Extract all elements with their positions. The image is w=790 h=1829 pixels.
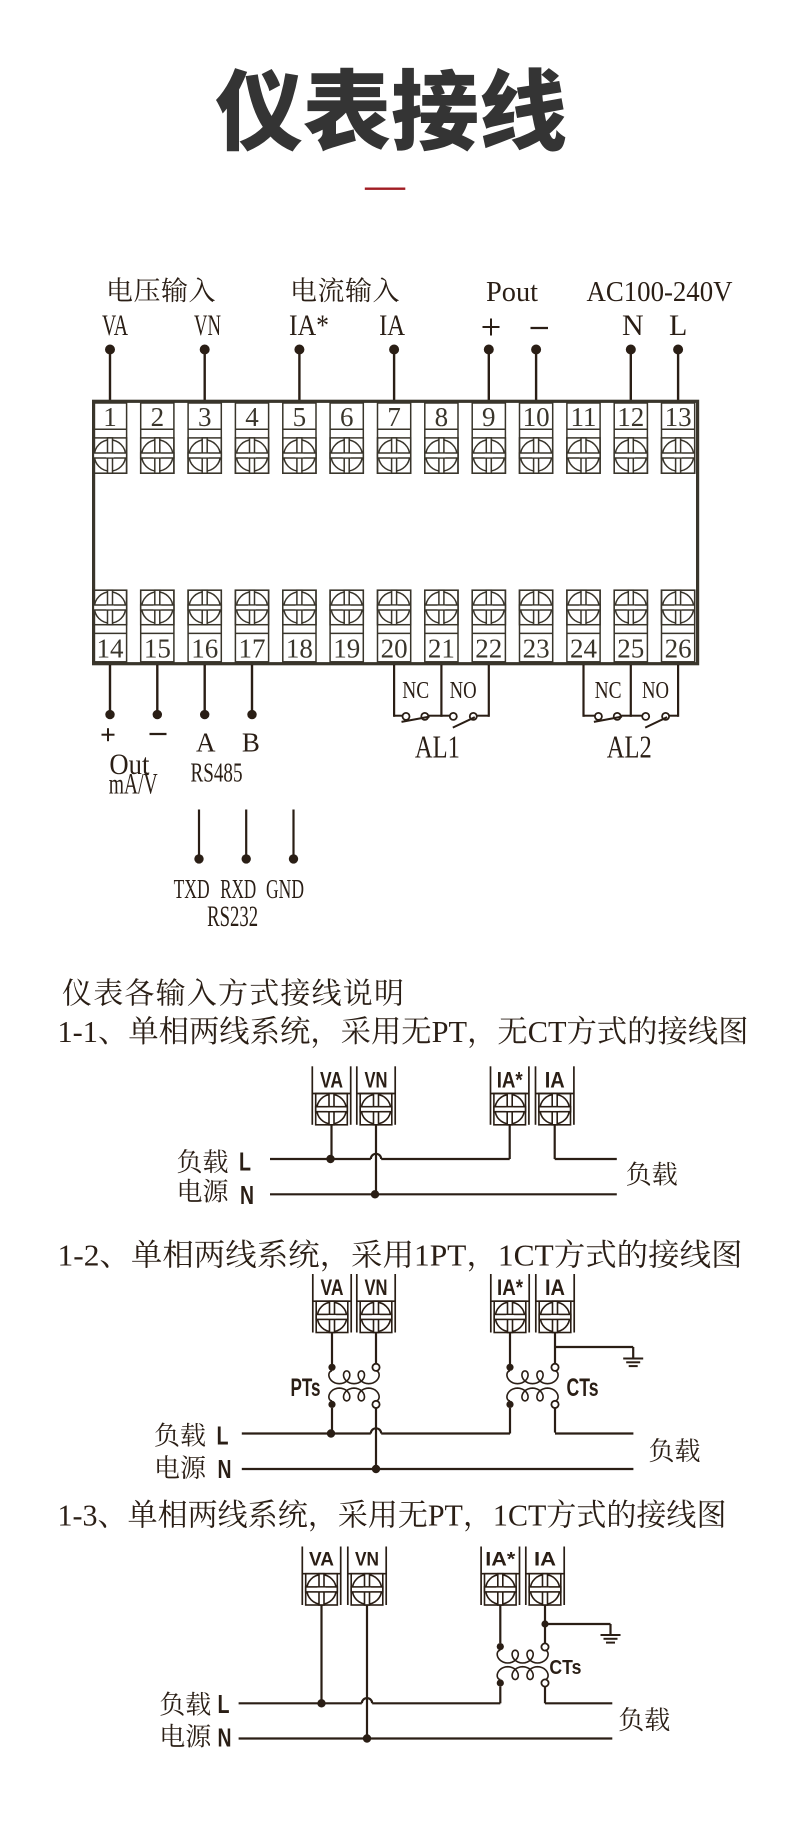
svg-text:NO: NO: [450, 678, 477, 704]
svg-text:1: 1: [103, 402, 117, 432]
svg-text:负载: 负载: [648, 1431, 700, 1468]
svg-text:7: 7: [387, 402, 401, 432]
svg-text:电流输入: 电流输入: [290, 269, 400, 308]
svg-text:RS232: RS232: [207, 900, 258, 933]
svg-text:AC100-240V: AC100-240V: [587, 277, 733, 308]
svg-text:15: 15: [144, 634, 171, 664]
svg-text:L: L: [669, 309, 687, 342]
svg-text:N: N: [240, 1180, 254, 1210]
svg-text:10: 10: [523, 402, 550, 432]
svg-text:18: 18: [286, 634, 313, 664]
svg-text:CTs: CTs: [567, 1374, 599, 1402]
svg-text:IA*: IA*: [485, 1550, 516, 1571]
svg-text:A: A: [196, 727, 216, 757]
svg-text:5: 5: [293, 402, 307, 432]
svg-text:L: L: [218, 1689, 230, 1719]
svg-text:IA: IA: [545, 1068, 565, 1093]
svg-text:3: 3: [198, 402, 212, 432]
svg-text:VA: VA: [321, 1275, 344, 1300]
svg-text:PTs: PTs: [291, 1374, 321, 1402]
svg-text:24: 24: [570, 634, 598, 664]
svg-text:VN: VN: [365, 1068, 388, 1093]
svg-text:IA: IA: [379, 309, 405, 342]
svg-text:负载: 负载: [618, 1700, 670, 1737]
svg-text:仪表接线: 仪表接线: [215, 42, 567, 169]
svg-text:IA: IA: [545, 1275, 565, 1300]
svg-text:mA/V: mA/V: [109, 768, 158, 801]
svg-text:19: 19: [333, 634, 360, 664]
svg-text:4: 4: [245, 402, 259, 432]
svg-text:1-3、单相两线系统，采用无PT，1CT方式的接线图: 1-3、单相两线系统，采用无PT，1CT方式的接线图: [58, 1490, 727, 1535]
svg-text:N: N: [218, 1454, 232, 1484]
svg-text:17: 17: [239, 634, 266, 664]
svg-text:8: 8: [435, 402, 449, 432]
svg-text:NC: NC: [595, 678, 622, 704]
svg-text:2: 2: [151, 402, 165, 432]
svg-text:VA: VA: [102, 309, 128, 342]
svg-text:1-1、单相两线系统，采用无PT，无CT方式的接线图: 1-1、单相两线系统，采用无PT，无CT方式的接线图: [58, 1006, 749, 1051]
svg-text:14: 14: [97, 634, 125, 664]
svg-text:26: 26: [665, 634, 692, 664]
svg-text:VA: VA: [309, 1550, 334, 1571]
svg-text:GND: GND: [266, 874, 304, 904]
svg-text:负载: 负载: [626, 1155, 678, 1192]
svg-text:L: L: [239, 1147, 251, 1177]
svg-text:TXD: TXD: [174, 874, 210, 904]
svg-text:1-2、单相两线系统，采用1PT，1CT方式的接线图: 1-2、单相两线系统，采用1PT，1CT方式的接线图: [58, 1230, 743, 1275]
svg-text:电压输入: 电压输入: [106, 269, 216, 308]
svg-text:16: 16: [191, 634, 218, 664]
svg-text:N: N: [622, 309, 644, 342]
svg-text:21: 21: [428, 634, 455, 664]
svg-text:AL2: AL2: [607, 729, 652, 765]
svg-text:9: 9: [482, 402, 496, 432]
svg-text:13: 13: [665, 402, 692, 432]
svg-text:负载: 负载: [154, 1416, 206, 1453]
svg-text:25: 25: [617, 634, 644, 664]
svg-text:N: N: [218, 1723, 232, 1753]
svg-text:AL1: AL1: [415, 729, 460, 765]
svg-text:VN: VN: [194, 309, 221, 342]
svg-text:B: B: [242, 727, 260, 757]
svg-text:6: 6: [340, 402, 354, 432]
svg-text:20: 20: [381, 634, 408, 664]
svg-text:23: 23: [523, 634, 550, 664]
svg-text:IA*: IA*: [289, 309, 329, 342]
svg-text:12: 12: [617, 402, 644, 432]
svg-text:VN: VN: [365, 1275, 388, 1300]
svg-text:11: 11: [570, 402, 596, 432]
svg-text:NC: NC: [402, 678, 429, 704]
svg-text:IA: IA: [534, 1550, 556, 1571]
svg-text:RS485: RS485: [191, 758, 243, 788]
svg-text:Pout: Pout: [486, 277, 538, 308]
svg-text:IA*: IA*: [497, 1275, 523, 1300]
svg-text:VN: VN: [355, 1550, 379, 1571]
svg-text:22: 22: [475, 634, 502, 664]
svg-text:电源: 电源: [154, 1448, 206, 1485]
svg-text:L: L: [217, 1421, 229, 1451]
svg-text:电源: 电源: [176, 1172, 228, 1209]
svg-text:VA: VA: [320, 1068, 343, 1093]
svg-text:IA*: IA*: [497, 1068, 523, 1093]
svg-text:NO: NO: [642, 678, 669, 704]
svg-text:CTs: CTs: [549, 1657, 581, 1679]
svg-text:电源: 电源: [159, 1717, 211, 1754]
